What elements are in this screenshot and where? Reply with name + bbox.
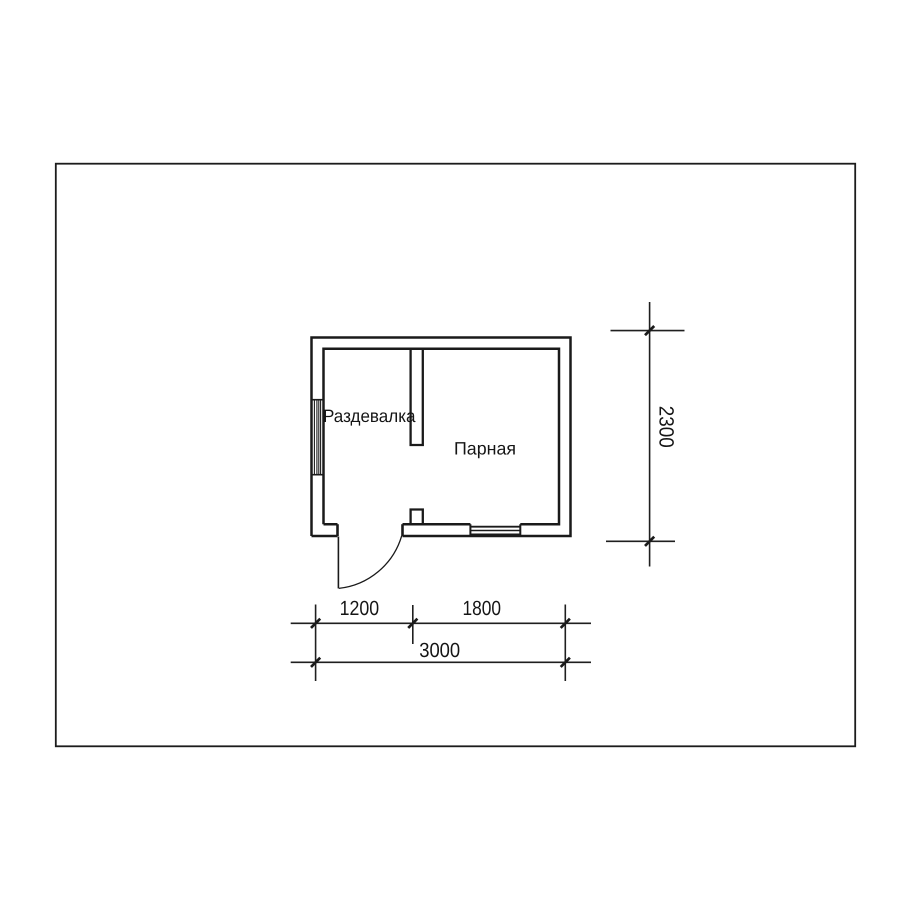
svg-text:Раздевалка: Раздевалка [323, 406, 416, 426]
svg-text:1800: 1800 [463, 597, 502, 620]
svg-text:2300: 2300 [655, 406, 678, 448]
svg-text:Парная: Парная [454, 438, 516, 458]
svg-text:3000: 3000 [419, 639, 460, 662]
svg-text:1200: 1200 [340, 597, 380, 620]
